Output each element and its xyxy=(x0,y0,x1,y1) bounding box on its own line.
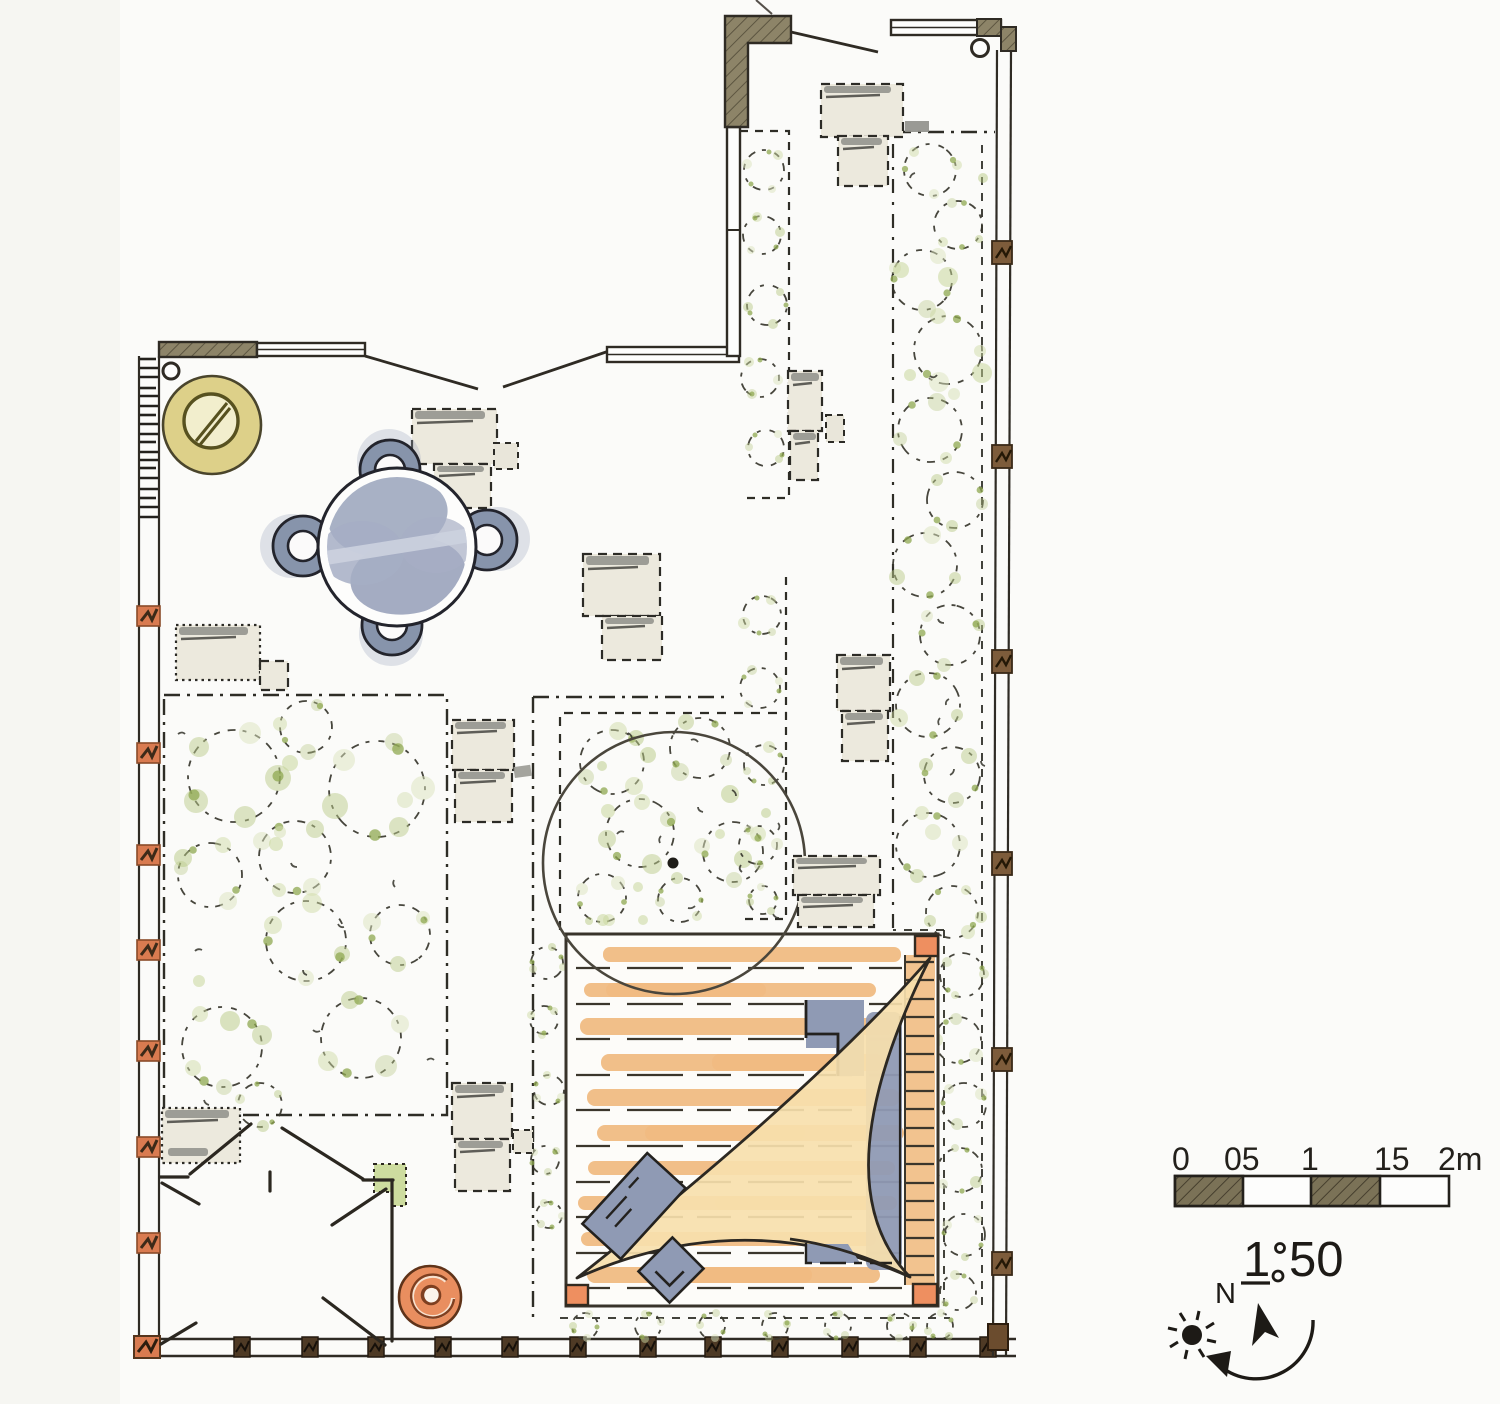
svg-text:2m: 2m xyxy=(1438,1141,1482,1177)
svg-text:0: 0 xyxy=(1172,1141,1190,1177)
svg-text:1: 1 xyxy=(1301,1141,1319,1177)
svg-text:50: 50 xyxy=(1289,1233,1344,1287)
svg-text:1: 1 xyxy=(1243,1233,1270,1287)
svg-text:N: N xyxy=(1215,1278,1236,1310)
svg-text:15: 15 xyxy=(1374,1141,1410,1177)
svg-text:05: 05 xyxy=(1224,1141,1260,1177)
